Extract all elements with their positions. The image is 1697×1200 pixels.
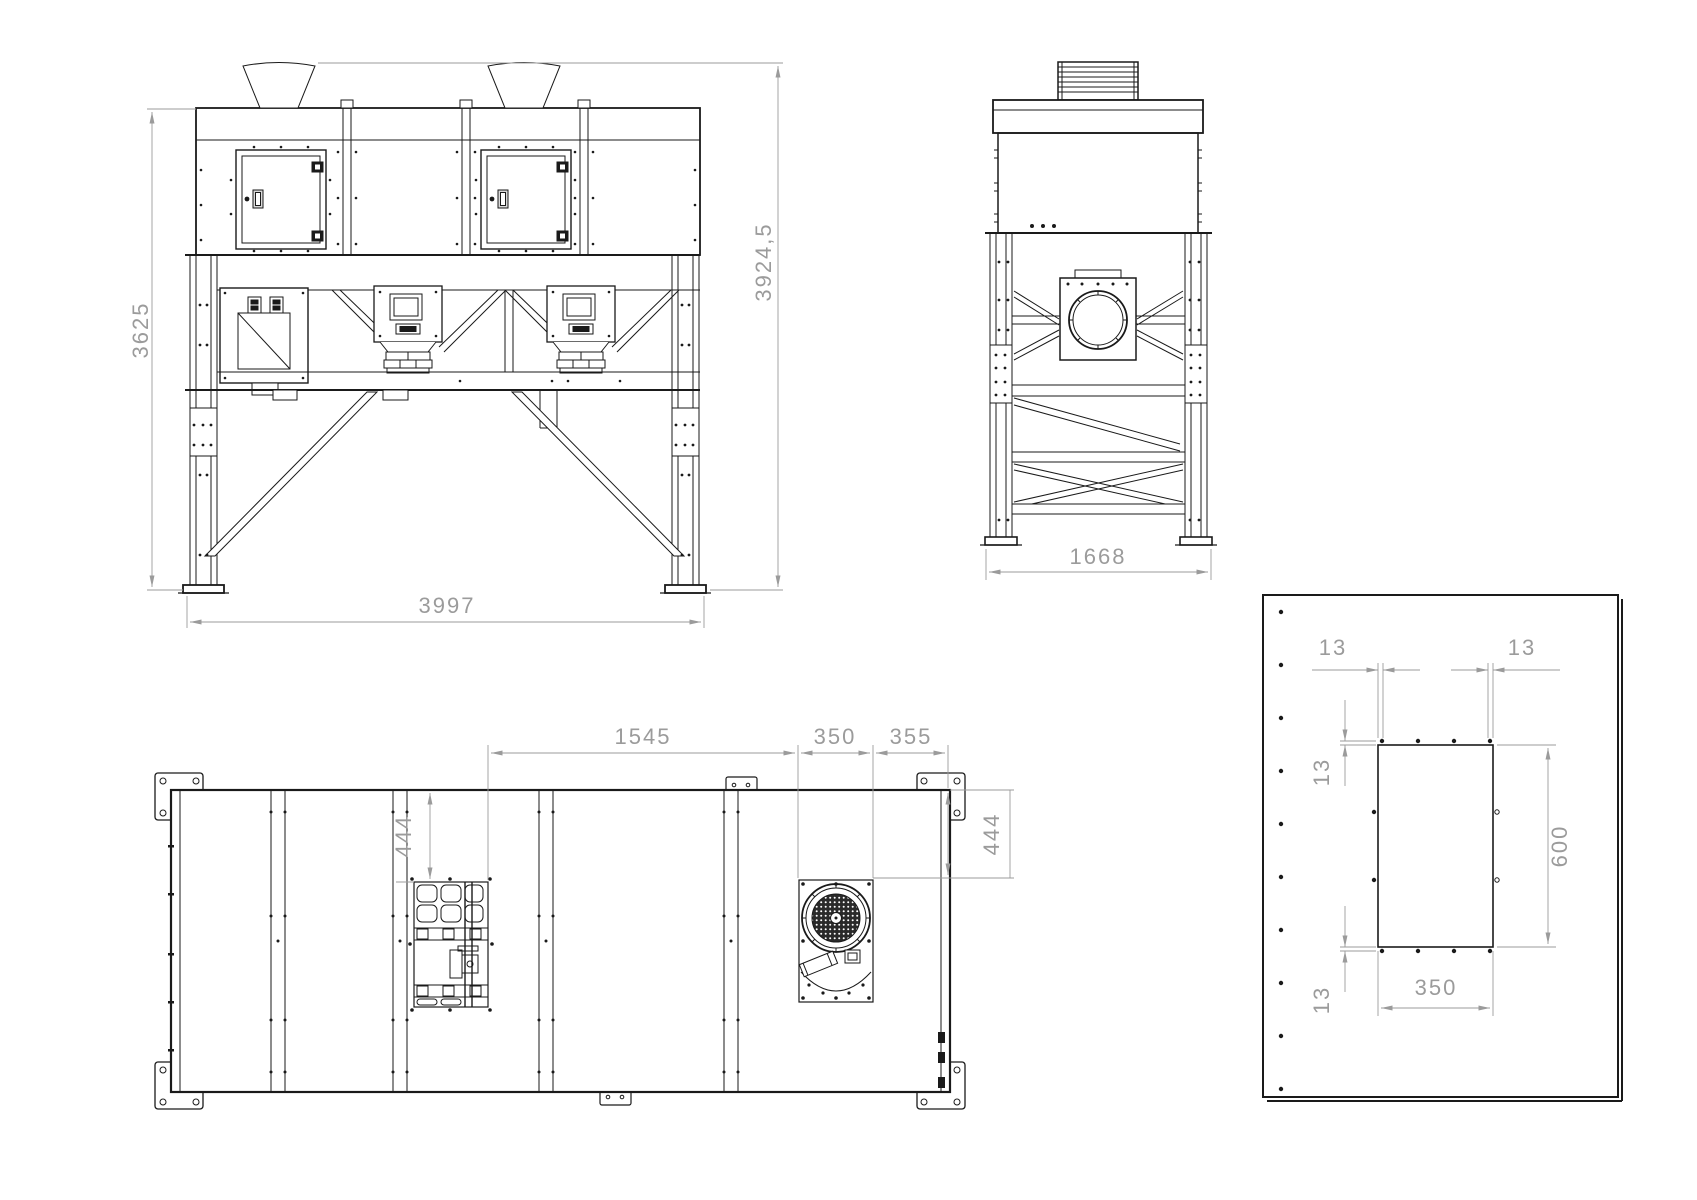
side-view-drawing <box>980 62 1217 580</box>
inlet-funnel-left <box>243 63 315 109</box>
drawing-canvas: 3625 3924,5 3997 1668 1545 350 355 444 4… <box>0 0 1697 1200</box>
dim-detail-offset-tl: 13 <box>1319 637 1347 659</box>
dim-detail-opening-height: 600 <box>1549 825 1571 868</box>
inlet-funnel-right <box>488 63 560 109</box>
side-chute-box <box>220 288 308 395</box>
vent-stack <box>1058 62 1138 100</box>
dim-plan-vent-offset: 444 <box>393 815 415 858</box>
hopper-outlet-right <box>547 286 615 373</box>
dim-plan-vent-to-fan: 1545 <box>615 726 672 748</box>
dim-detail-offset-lower: 13 <box>1311 986 1333 1014</box>
dim-plan-fan-width: 350 <box>814 726 857 748</box>
dim-front-frame-height: 3625 <box>130 302 152 359</box>
dim-detail-offset-upper: 13 <box>1311 758 1333 786</box>
plan-view-drawing <box>155 745 1014 1109</box>
cad-drawing <box>0 0 1697 1200</box>
fan-inlet-plate <box>1060 270 1136 360</box>
fan-assembly <box>799 880 873 1002</box>
vent-plate <box>408 877 494 1012</box>
dim-detail-offset-tr: 13 <box>1508 637 1536 659</box>
dim-front-overall-width: 3997 <box>419 595 476 617</box>
dim-detail-opening-width: 350 <box>1415 977 1458 999</box>
hopper-outlet-left <box>374 286 442 373</box>
dim-plan-fan-to-edge: 355 <box>890 726 933 748</box>
dim-plan-fan-offset: 444 <box>981 813 1003 856</box>
access-door-right <box>481 150 571 249</box>
front-view-drawing <box>147 63 783 629</box>
dim-side-overall-depth: 1668 <box>1070 546 1127 568</box>
access-door-left <box>236 150 326 249</box>
dim-front-overall-height: 3924,5 <box>753 222 775 301</box>
